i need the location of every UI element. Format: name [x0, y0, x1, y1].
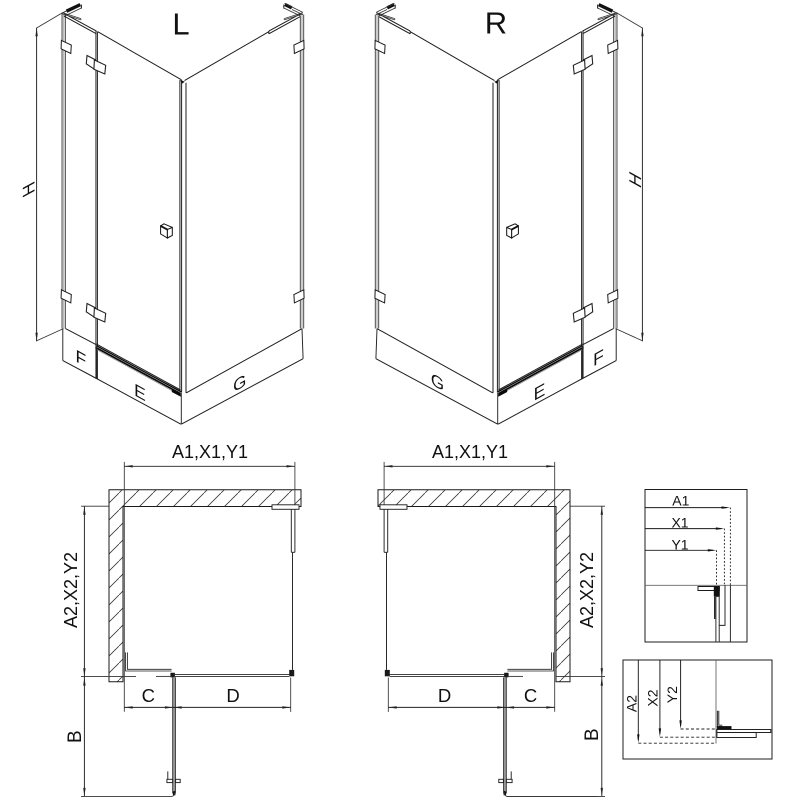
svg-text:A2: A2 [623, 695, 639, 712]
svg-text:L: L [172, 7, 189, 42]
svg-text:C: C [524, 685, 537, 706]
svg-text:G: G [233, 369, 246, 396]
svg-text:C: C [142, 685, 155, 706]
svg-text:Y2: Y2 [664, 686, 680, 703]
svg-text:X1: X1 [671, 515, 688, 531]
svg-text:F: F [593, 345, 604, 370]
svg-text:H: H [625, 168, 645, 191]
svg-text:Y1: Y1 [671, 536, 688, 552]
svg-text:X2: X2 [644, 689, 660, 706]
svg-text:A1: A1 [672, 493, 689, 509]
svg-text:F: F [76, 345, 87, 370]
svg-text:D: D [438, 685, 451, 706]
svg-text:G: G [431, 368, 444, 395]
svg-text:H: H [19, 178, 39, 201]
svg-text:A1,X1,Y1: A1,X1,Y1 [432, 442, 508, 462]
svg-text:D: D [226, 685, 239, 706]
svg-text:E: E [534, 379, 546, 405]
svg-text:A2,X2,Y2: A2,X2,Y2 [577, 552, 597, 628]
svg-text:E: E [134, 379, 146, 405]
svg-text:A2,X2,Y2: A2,X2,Y2 [61, 552, 81, 628]
svg-text:B: B [65, 730, 86, 743]
svg-text:R: R [485, 6, 507, 41]
svg-text:A1,X1,Y1: A1,X1,Y1 [172, 442, 248, 462]
svg-text:B: B [582, 728, 603, 741]
